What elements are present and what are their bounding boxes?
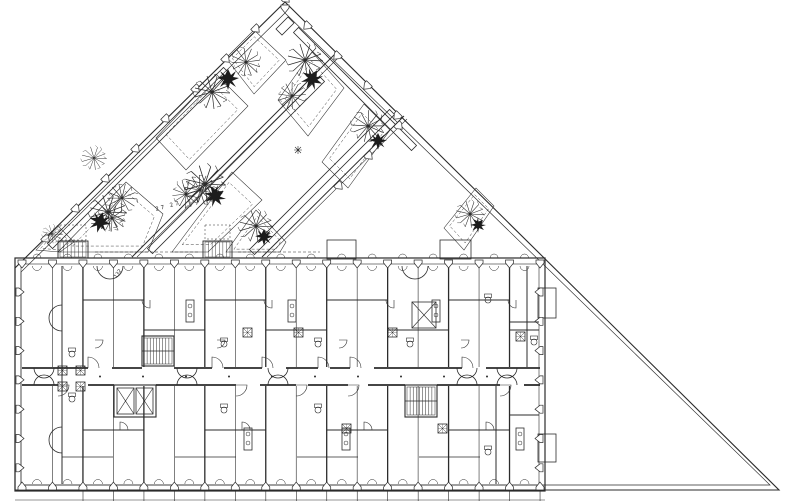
floor-plan-drawing — [0, 0, 805, 503]
floor-plan-canvas: 132 27 27 — [0, 0, 805, 503]
